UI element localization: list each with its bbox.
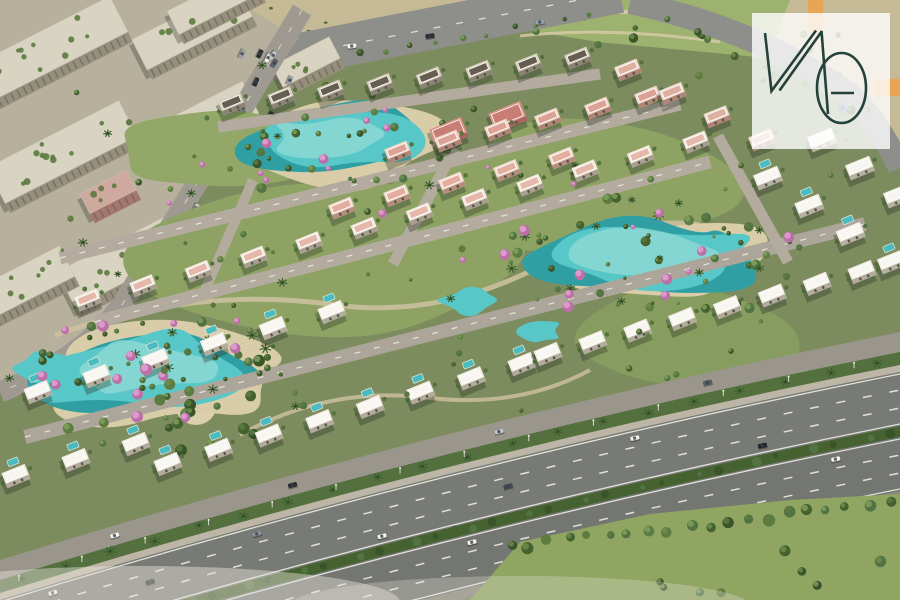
aerial-render xyxy=(0,0,900,600)
development-aerial-view xyxy=(0,0,900,600)
